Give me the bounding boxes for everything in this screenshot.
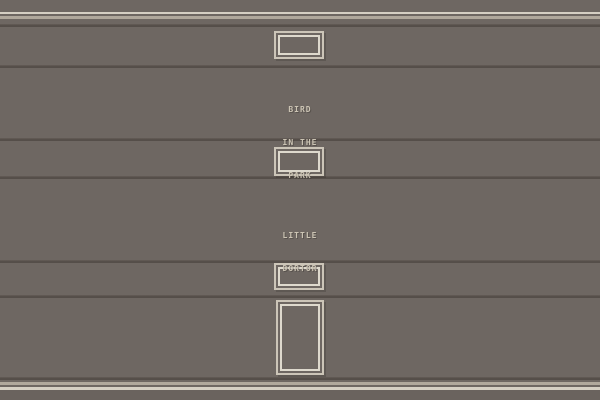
cornice-top-dark-line xyxy=(0,24,600,27)
sign-line: PARK xyxy=(0,170,600,181)
cornice-bottom-dim-band xyxy=(0,382,600,385)
window-inner-frame xyxy=(278,35,320,55)
base-wall-strip xyxy=(0,390,600,400)
sign-bird-in-the-park[interactable]: BIRD IN THE PARK xyxy=(0,82,600,203)
sign-line: DORTOR xyxy=(0,263,600,274)
floor-separator xyxy=(0,377,600,380)
door[interactable] xyxy=(276,300,324,375)
door-inner-frame xyxy=(280,304,320,371)
building-facade: BIRD IN THE PARK LITTLE DORTOR xyxy=(0,0,600,400)
sign-line: LITTLE xyxy=(0,230,600,241)
sign-line: BIRD xyxy=(0,104,600,115)
cornice-top-bright-line xyxy=(0,12,600,14)
floor-separator xyxy=(0,65,600,68)
sign-line: IN THE xyxy=(0,137,600,148)
cornice-top-dim-band xyxy=(0,16,600,19)
sign-little-dortor[interactable]: LITTLE DORTOR xyxy=(0,208,600,296)
window-frame-top[interactable] xyxy=(274,31,324,59)
